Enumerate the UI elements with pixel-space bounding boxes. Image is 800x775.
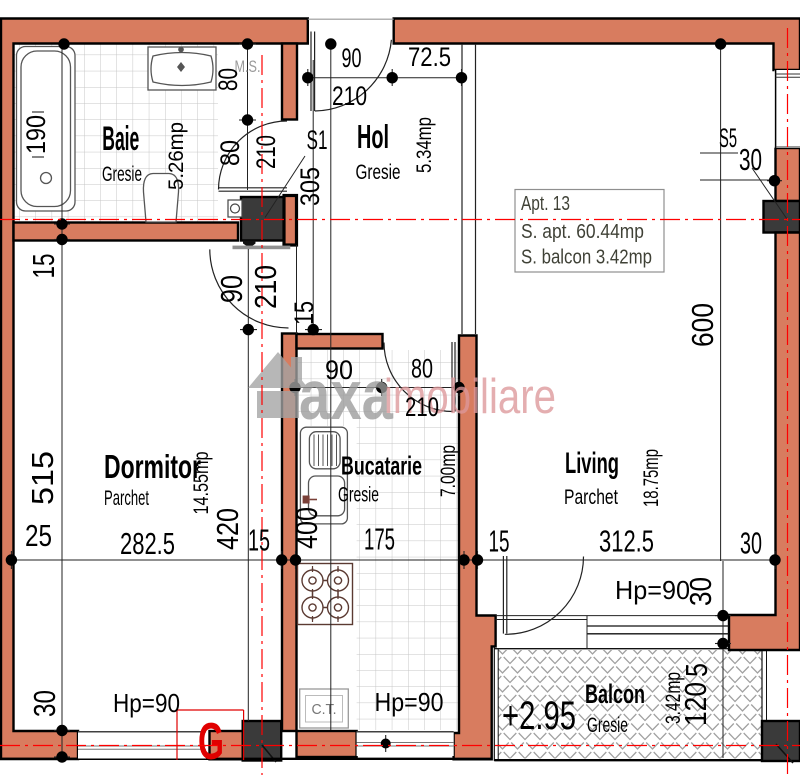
svg-text:210: 210 <box>251 135 281 169</box>
svg-text:14.55mp: 14.55mp <box>190 452 213 515</box>
svg-text:30: 30 <box>739 142 762 177</box>
svg-text:15: 15 <box>289 301 319 325</box>
svg-text:15: 15 <box>26 254 61 279</box>
svg-text:Dormitor: Dormitor <box>104 448 201 485</box>
svg-text:515: 515 <box>25 451 60 505</box>
svg-text:400: 400 <box>289 507 324 549</box>
svg-text:Hp=90: Hp=90 <box>375 687 444 717</box>
svg-text:Gresie: Gresie <box>587 714 628 737</box>
svg-text:30: 30 <box>683 577 718 606</box>
svg-text:175: 175 <box>364 522 395 557</box>
svg-text:600: 600 <box>685 303 720 347</box>
svg-text:Balcon: Balcon <box>585 679 645 709</box>
svg-text:305: 305 <box>295 167 325 206</box>
svg-text:210: 210 <box>332 81 367 111</box>
svg-text:190: 190 <box>21 115 51 154</box>
svg-text:Apt. 13: Apt. 13 <box>521 193 570 215</box>
svg-text:S5: S5 <box>719 123 737 153</box>
svg-text:90: 90 <box>342 43 362 73</box>
svg-text:Gresie: Gresie <box>102 163 142 186</box>
svg-text:Hp=90: Hp=90 <box>113 688 180 718</box>
svg-text:210: 210 <box>248 265 283 309</box>
svg-text:Bucatarie: Bucatarie <box>341 451 422 481</box>
svg-text:Hol: Hol <box>357 118 389 155</box>
svg-text:210: 210 <box>405 392 439 422</box>
svg-text:G: G <box>198 713 224 771</box>
svg-text:+2.95: +2.95 <box>502 694 576 738</box>
svg-text:312.5: 312.5 <box>599 524 654 559</box>
svg-text:Parchet: Parchet <box>104 487 149 510</box>
svg-text:80: 80 <box>411 354 433 384</box>
svg-text:120: 120 <box>678 682 713 726</box>
svg-text:420: 420 <box>210 508 245 550</box>
svg-text:15: 15 <box>248 523 270 558</box>
svg-text:Hp=90: Hp=90 <box>615 575 690 605</box>
svg-text:Gresie: Gresie <box>338 484 379 507</box>
svg-text:15: 15 <box>489 524 510 559</box>
svg-text:Living: Living <box>565 447 619 480</box>
svg-text:90: 90 <box>214 275 249 303</box>
svg-text:Parchet: Parchet <box>564 486 618 509</box>
svg-text:Baie: Baie <box>102 120 139 158</box>
svg-text:80: 80 <box>215 140 245 166</box>
svg-text:5.34mp: 5.34mp <box>413 117 436 173</box>
svg-text:90: 90 <box>325 355 353 385</box>
svg-text:72.5: 72.5 <box>408 42 451 72</box>
svg-text:C.T.: C.T. <box>312 702 337 718</box>
svg-text:5: 5 <box>679 663 714 677</box>
svg-text:S. apt. 60.44mp: S. apt. 60.44mp <box>521 221 644 243</box>
svg-text:S1: S1 <box>307 125 328 155</box>
svg-text:30: 30 <box>740 526 762 561</box>
svg-text:80: 80 <box>213 68 243 91</box>
svg-text:30: 30 <box>27 690 62 717</box>
svg-text:Gresie: Gresie <box>356 161 401 184</box>
svg-text:S. balcon 3.42mp: S. balcon 3.42mp <box>521 247 652 269</box>
svg-text:7.00mp: 7.00mp <box>437 445 460 497</box>
svg-text:282.5: 282.5 <box>120 526 175 561</box>
svg-text:18.75mp: 18.75mp <box>640 449 663 507</box>
svg-text:5.26mp: 5.26mp <box>165 122 188 190</box>
svg-text:25: 25 <box>25 518 52 553</box>
